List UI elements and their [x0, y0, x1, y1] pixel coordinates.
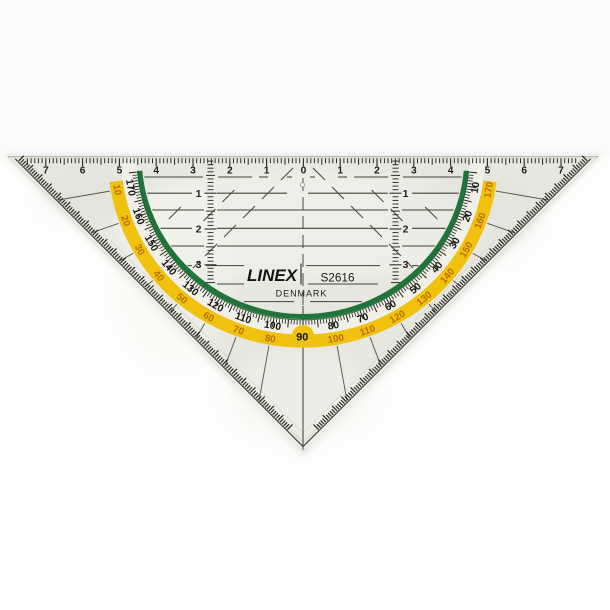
svg-text:3: 3: [411, 166, 417, 177]
svg-text:DENMARK: DENMARK: [276, 289, 328, 299]
svg-text:S2616: S2616: [320, 270, 355, 284]
svg-text:90: 90: [296, 331, 308, 343]
svg-text:2: 2: [196, 224, 202, 236]
svg-text:7: 7: [43, 166, 49, 177]
svg-text:3: 3: [190, 166, 196, 177]
svg-text:10: 10: [470, 181, 483, 194]
svg-text:1: 1: [264, 166, 270, 177]
svg-text:0: 0: [301, 166, 307, 177]
svg-text:2: 2: [403, 224, 409, 236]
svg-text:6: 6: [80, 166, 86, 177]
svg-text:3: 3: [403, 259, 409, 271]
svg-text:80: 80: [327, 320, 340, 333]
svg-text:2: 2: [374, 166, 380, 177]
svg-text:1: 1: [196, 188, 202, 200]
svg-text:1: 1: [403, 188, 409, 200]
svg-text:1: 1: [337, 166, 343, 177]
svg-text:LINEX: LINEX: [247, 266, 299, 285]
svg-text:4: 4: [448, 166, 454, 177]
svg-text:5: 5: [117, 166, 123, 177]
svg-text:2: 2: [227, 166, 233, 177]
svg-text:5: 5: [485, 166, 491, 177]
svg-text:7: 7: [558, 166, 564, 177]
svg-text:6: 6: [521, 166, 527, 177]
svg-text:3: 3: [196, 259, 202, 271]
svg-text:4: 4: [153, 166, 159, 177]
